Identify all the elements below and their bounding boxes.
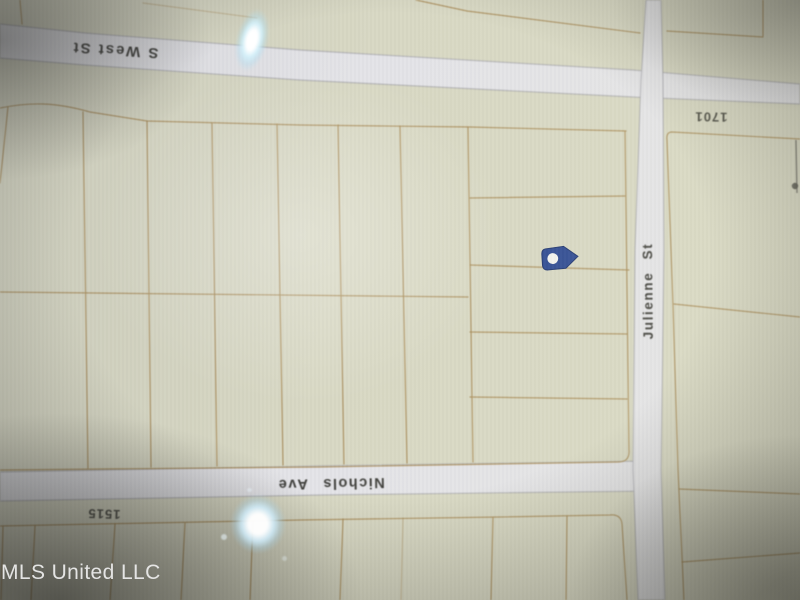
location-marker[interactable]: [537, 242, 582, 276]
plat-map-photo: S West St Nichols Ave Julienne St 1701 1…: [0, 0, 800, 600]
plat-map-drawing: [0, 0, 800, 600]
marker-body: [542, 246, 579, 270]
